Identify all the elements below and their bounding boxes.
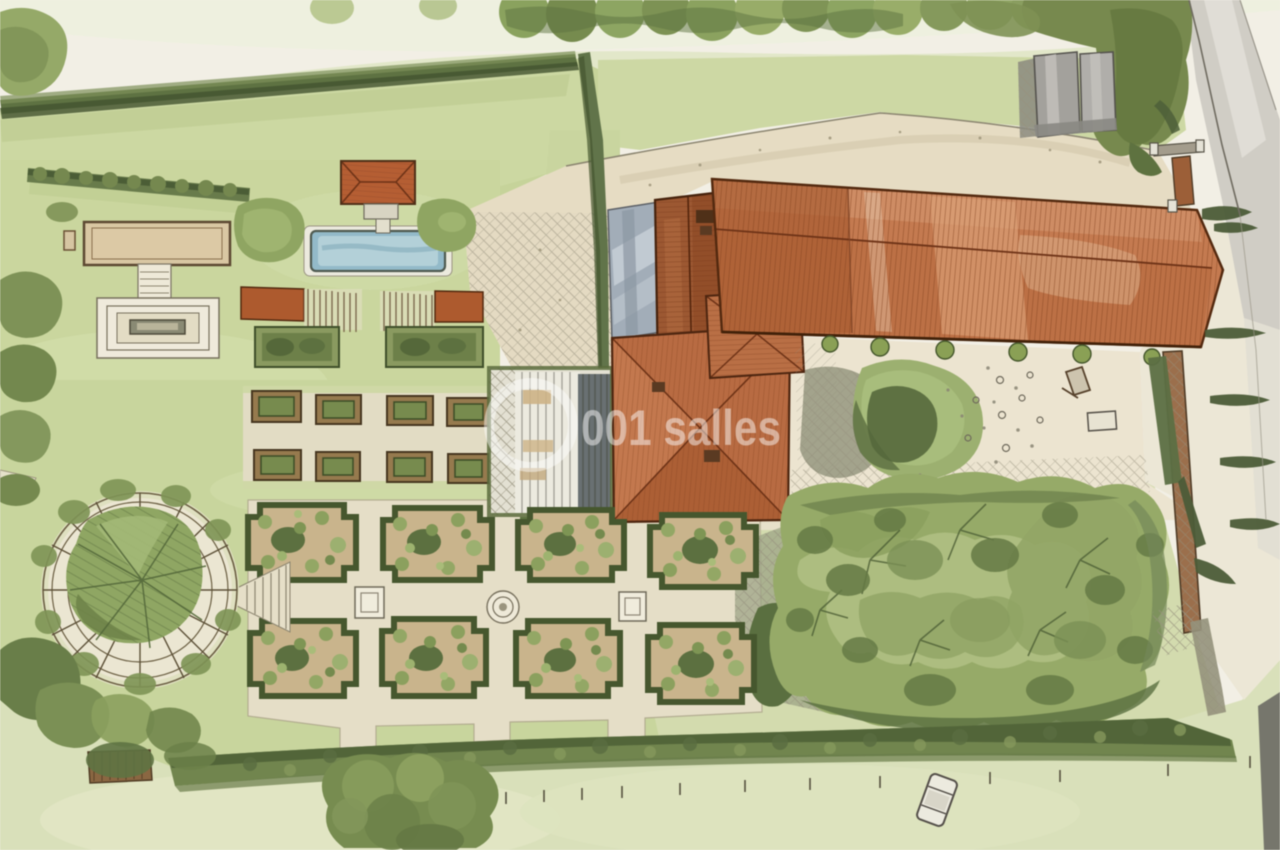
svg-text:001 salles: 001 salles xyxy=(581,400,781,456)
